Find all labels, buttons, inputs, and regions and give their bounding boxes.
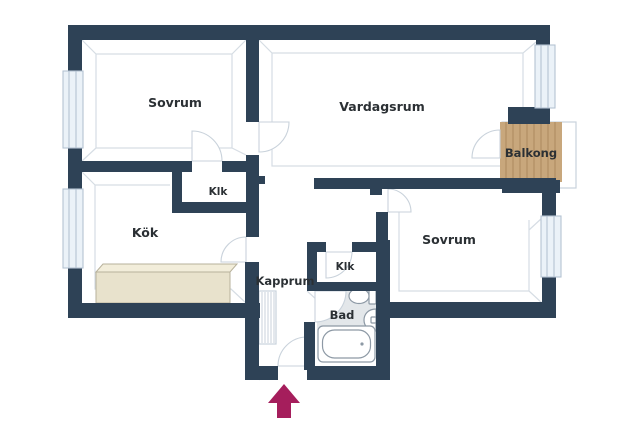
door-sovrum-2 — [388, 189, 411, 212]
wall-segment — [68, 25, 550, 40]
wall-segment — [542, 276, 556, 318]
window-vardagsrum-right — [535, 45, 555, 108]
sink-tap — [371, 317, 376, 323]
wall-segment — [304, 322, 315, 370]
door-balkong — [472, 130, 500, 158]
wall-segment — [542, 190, 556, 218]
room-label-klk-2: Klk — [336, 261, 356, 273]
wall-segment — [536, 25, 550, 46]
room-label-balkong: Balkong — [505, 146, 557, 160]
door-entrance — [278, 337, 307, 366]
room-label-sovrum-1: Sovrum — [148, 95, 202, 110]
room-label-vardagsrum: Vardagsrum — [339, 99, 424, 114]
kitchen-counter — [96, 264, 237, 303]
room-label-kok: Kök — [132, 225, 159, 240]
door-kok — [221, 237, 246, 262]
door-sovrum-1 — [192, 131, 222, 161]
room-label-klk-1: Klk — [209, 186, 229, 198]
wall-segment — [246, 155, 259, 237]
bathtub-drain — [360, 342, 363, 345]
wall-segment — [508, 107, 550, 124]
room-label-sovrum-2: Sovrum — [422, 232, 476, 247]
wall-segment — [376, 212, 388, 304]
room-label-kapprum: Kapprum — [256, 274, 315, 288]
wall-segment — [307, 282, 376, 291]
hall-wardrobe — [259, 291, 276, 344]
door-hinge-nub — [256, 176, 265, 184]
bathtub — [318, 326, 375, 362]
room-label-bad: Bad — [330, 308, 355, 322]
window-sovrum-2-right — [541, 216, 561, 277]
wall-segment — [68, 303, 260, 318]
door-vardagsrum — [259, 122, 289, 152]
wall-segment — [245, 366, 278, 380]
wall-segment — [314, 178, 556, 189]
toilet-tank — [369, 289, 376, 304]
floor-plan-svg: Sovrum Vardagsrum Balkong Klk Kök Sovrum… — [0, 0, 640, 427]
kitchen-counter-top — [96, 264, 237, 272]
window-kok-left — [63, 189, 83, 268]
entrance-arrow-icon — [268, 384, 300, 418]
wall-segment — [376, 302, 556, 318]
wall-segment — [172, 202, 259, 213]
wall-segment — [68, 146, 82, 190]
floor-plan-page: Sovrum Vardagsrum Balkong Klk Kök Sovrum… — [0, 0, 640, 427]
walls — [68, 25, 560, 380]
wall-segment — [246, 40, 259, 122]
wall-segment — [352, 242, 376, 252]
wall-segment — [68, 25, 82, 71]
wall-segment — [82, 161, 192, 172]
kitchen-counter-front — [96, 272, 230, 303]
window-sovrum-1-left — [63, 71, 83, 148]
door-hinge-nub — [370, 186, 382, 195]
